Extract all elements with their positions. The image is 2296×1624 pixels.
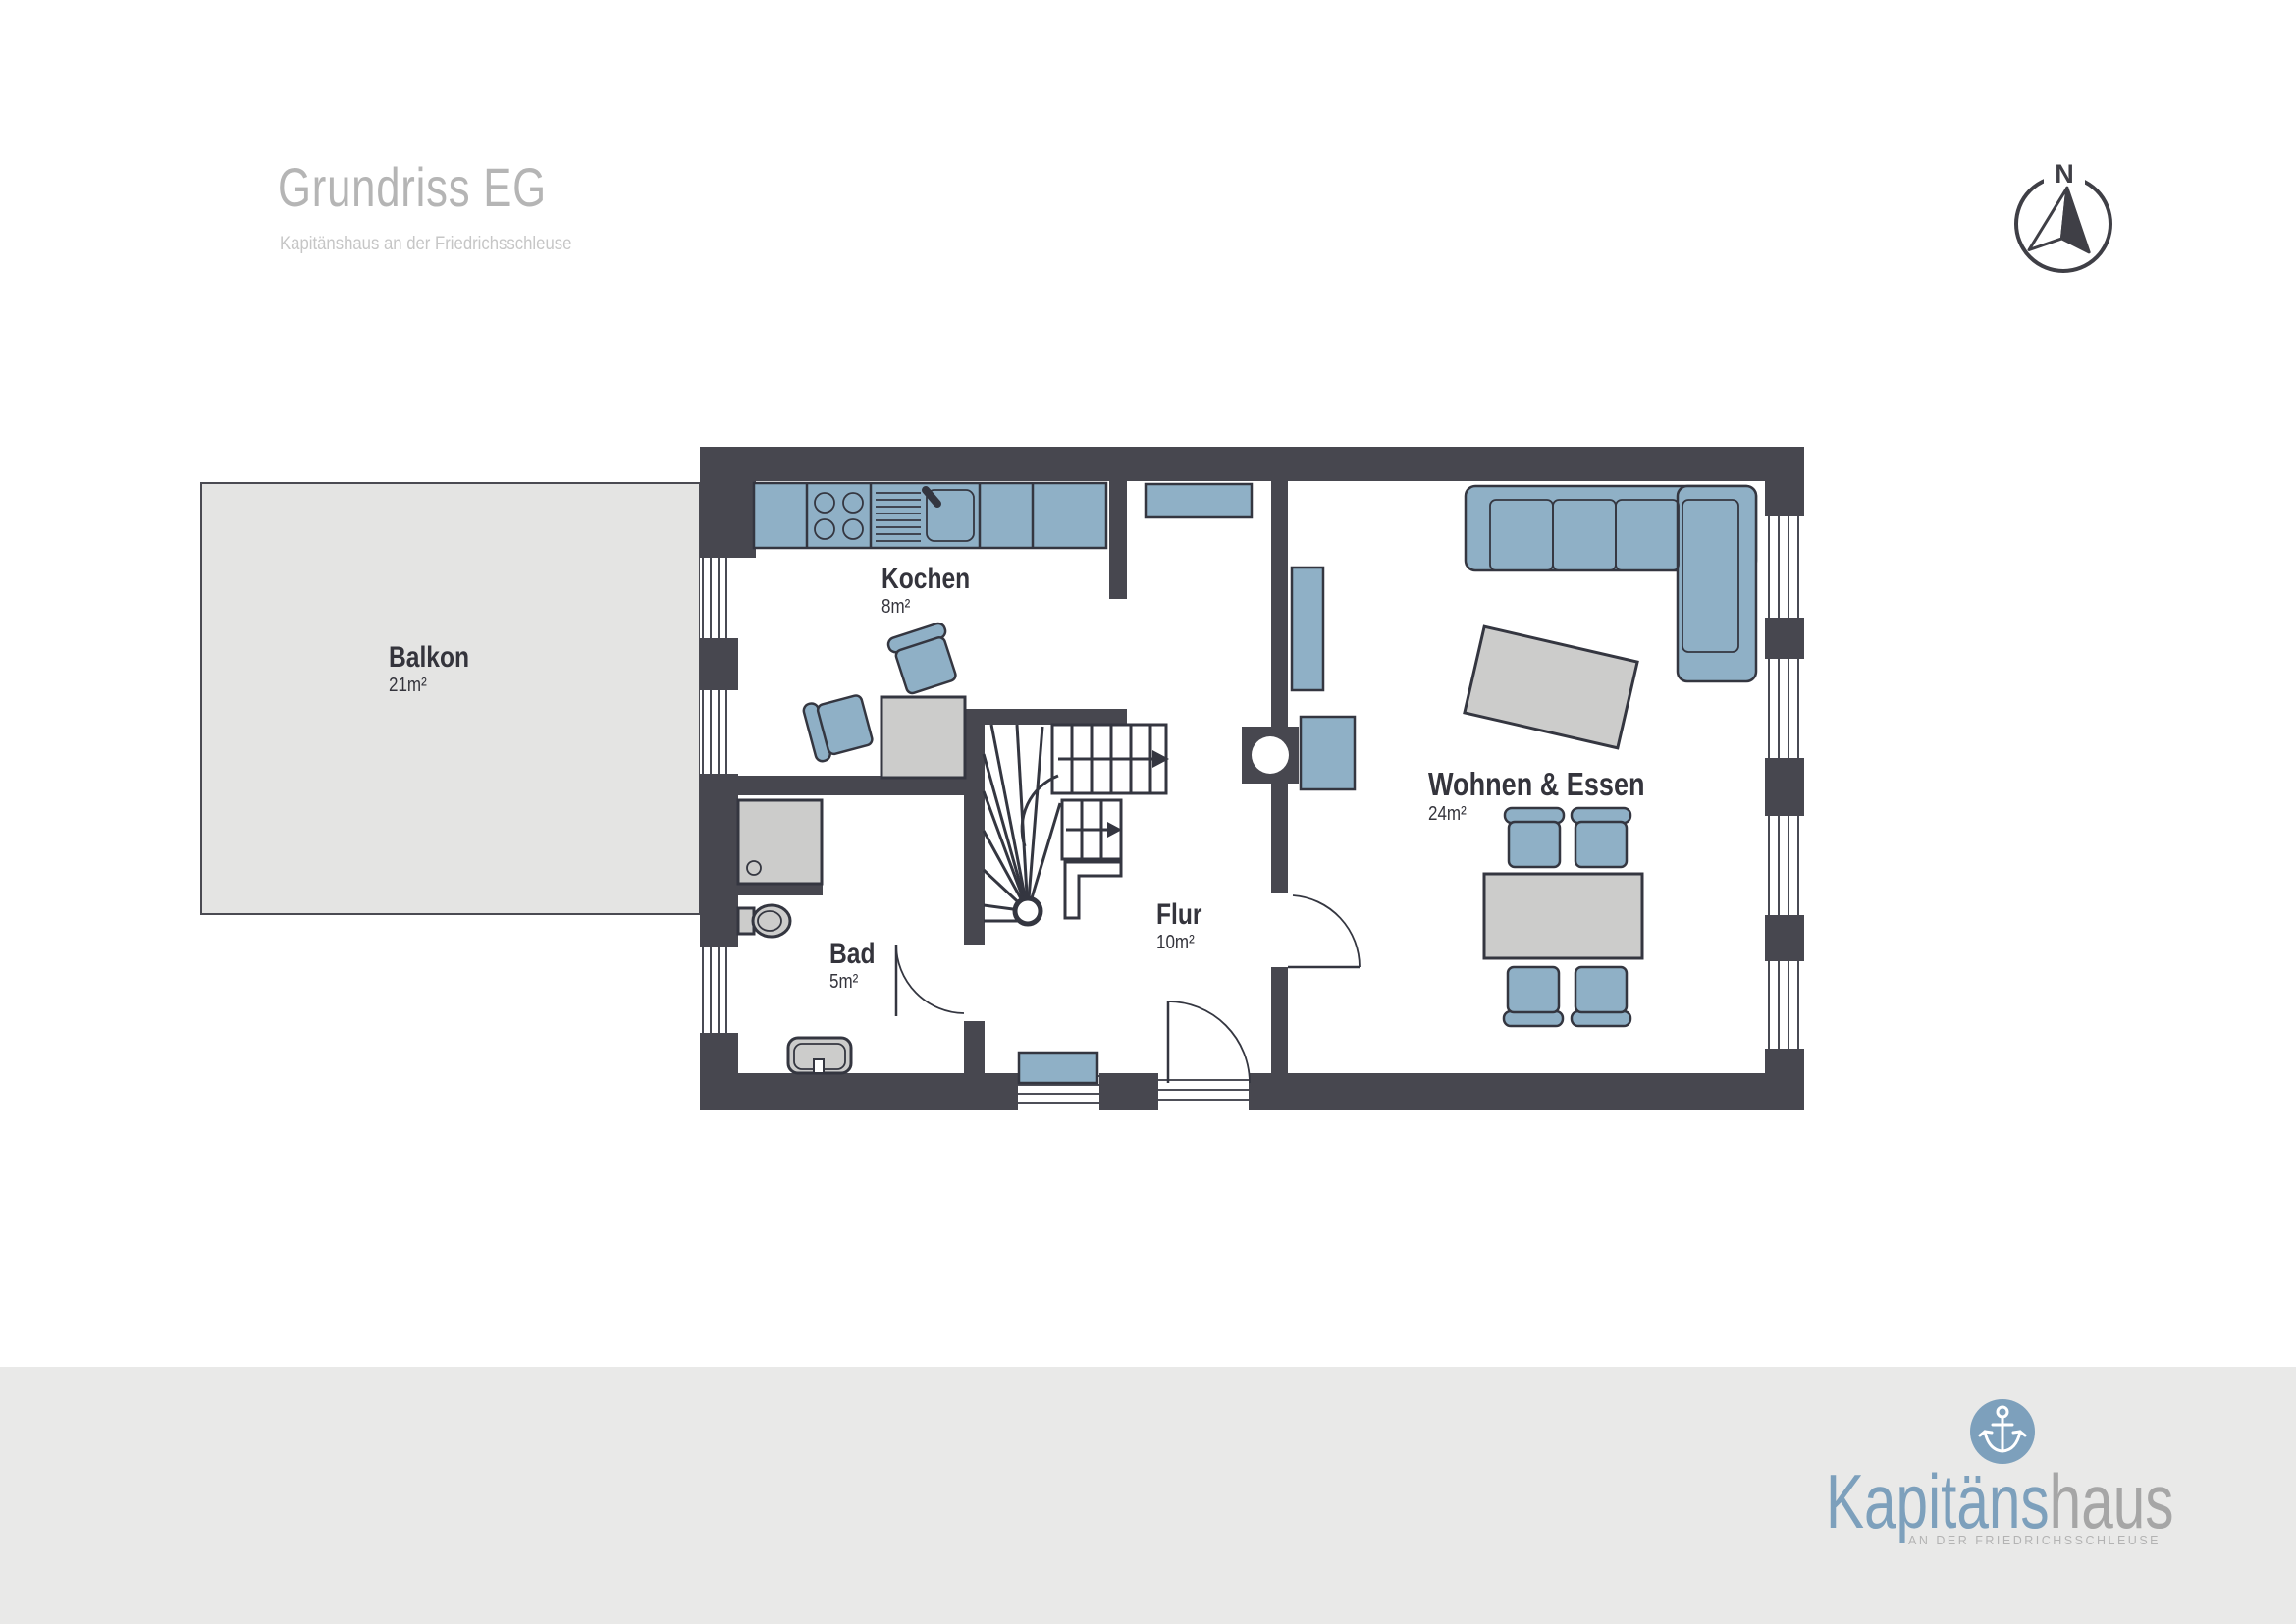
room-area: 10m² xyxy=(1156,933,1203,953)
room-name: Kochen xyxy=(881,564,970,595)
wall-shower-stub xyxy=(738,884,823,895)
wall-bottom-left xyxy=(700,1073,1018,1110)
wall-left-block1 xyxy=(700,638,738,690)
room-area: 21m² xyxy=(389,676,472,696)
room-name: Balkon xyxy=(389,642,469,674)
wall-right-corner-bottom xyxy=(1765,1049,1804,1110)
room-name: Wohnen & Essen xyxy=(1428,768,1645,802)
brand-logo: Kapitänshaus xyxy=(1826,1463,2174,1540)
hallway-furniture xyxy=(1019,484,1252,1083)
kitchen-table xyxy=(881,697,965,778)
toilet-icon xyxy=(738,905,790,937)
staircase xyxy=(984,725,1169,924)
wall-right-block1 xyxy=(1765,618,1804,659)
room-label-balkon: Balkon 21m² xyxy=(389,642,487,696)
rug xyxy=(1465,626,1637,748)
brand-part2: haus xyxy=(2050,1458,2174,1544)
dining-chair xyxy=(1504,967,1563,1026)
wall-kitchen-divider xyxy=(1109,481,1127,599)
room-label-bad: Bad 5m² xyxy=(829,939,885,993)
room-area: 5m² xyxy=(829,972,877,993)
wall-flur-wohnen-stub xyxy=(1271,967,1288,1073)
wall-bad-right xyxy=(964,709,985,945)
room-area: 8m² xyxy=(881,597,974,618)
dining-chair xyxy=(1572,967,1630,1026)
page-subtitle: Kapitänshaus an der Friedrichsschleuse xyxy=(280,234,571,255)
wall-bottom-right xyxy=(1249,1073,1804,1110)
wall-stair-top xyxy=(984,709,1127,725)
entrance-door xyxy=(1168,1001,1250,1083)
washbasin-icon xyxy=(788,1038,851,1073)
wardrobe xyxy=(1146,484,1252,517)
wall-left-corner-top xyxy=(700,447,756,558)
wall-left-block2 xyxy=(700,774,738,947)
wood-stove xyxy=(1301,717,1355,789)
room-name: Flur xyxy=(1156,899,1201,931)
brand-part1: Kapitäns xyxy=(1826,1458,2050,1544)
room-name: Bad xyxy=(829,939,875,970)
balcony-deck xyxy=(201,483,700,914)
brand-tagline: AN DER FRIEDRICHSSCHLEUSE xyxy=(1822,1534,2161,1547)
bad-door xyxy=(896,945,964,1016)
page-title: Grundriss EG xyxy=(278,155,547,219)
living-room-door xyxy=(1288,895,1360,967)
compass-north-label: N xyxy=(2048,159,2081,189)
chimney-flue xyxy=(1252,736,1289,774)
shower xyxy=(738,800,822,884)
wall-right-block2 xyxy=(1765,758,1804,816)
dining-table xyxy=(1484,874,1642,958)
room-label-kochen: Kochen 8m² xyxy=(881,564,989,618)
wall-bad-right-stub xyxy=(964,1021,985,1073)
room-area: 24m² xyxy=(1428,804,1653,825)
sideboard xyxy=(1292,568,1323,690)
bathroom-fixtures xyxy=(738,800,851,1073)
wall-flur-wohnen xyxy=(1271,481,1288,893)
wall-right-block3 xyxy=(1765,915,1804,961)
anchor-icon xyxy=(1970,1399,2035,1464)
room-label-wohnen: Wohnen & Essen 24m² xyxy=(1428,768,1692,825)
radiator xyxy=(1019,1053,1097,1083)
floor-plan-page: Grundriss EG Kapitänshaus an der Friedri… xyxy=(0,0,2296,1624)
north-arrow-icon xyxy=(2029,185,2096,256)
kitchen-chair xyxy=(802,690,874,762)
living-room-furniture xyxy=(1292,486,1756,1026)
wall-right-corner-top xyxy=(1765,447,1804,516)
wall-top xyxy=(700,447,1804,481)
room-label-flur: Flur 10m² xyxy=(1156,899,1212,953)
stair-newel xyxy=(1015,898,1041,924)
kitchen-chair xyxy=(886,622,961,696)
wall-bottom-mid xyxy=(1099,1073,1158,1110)
stair-handrail xyxy=(1065,862,1121,918)
